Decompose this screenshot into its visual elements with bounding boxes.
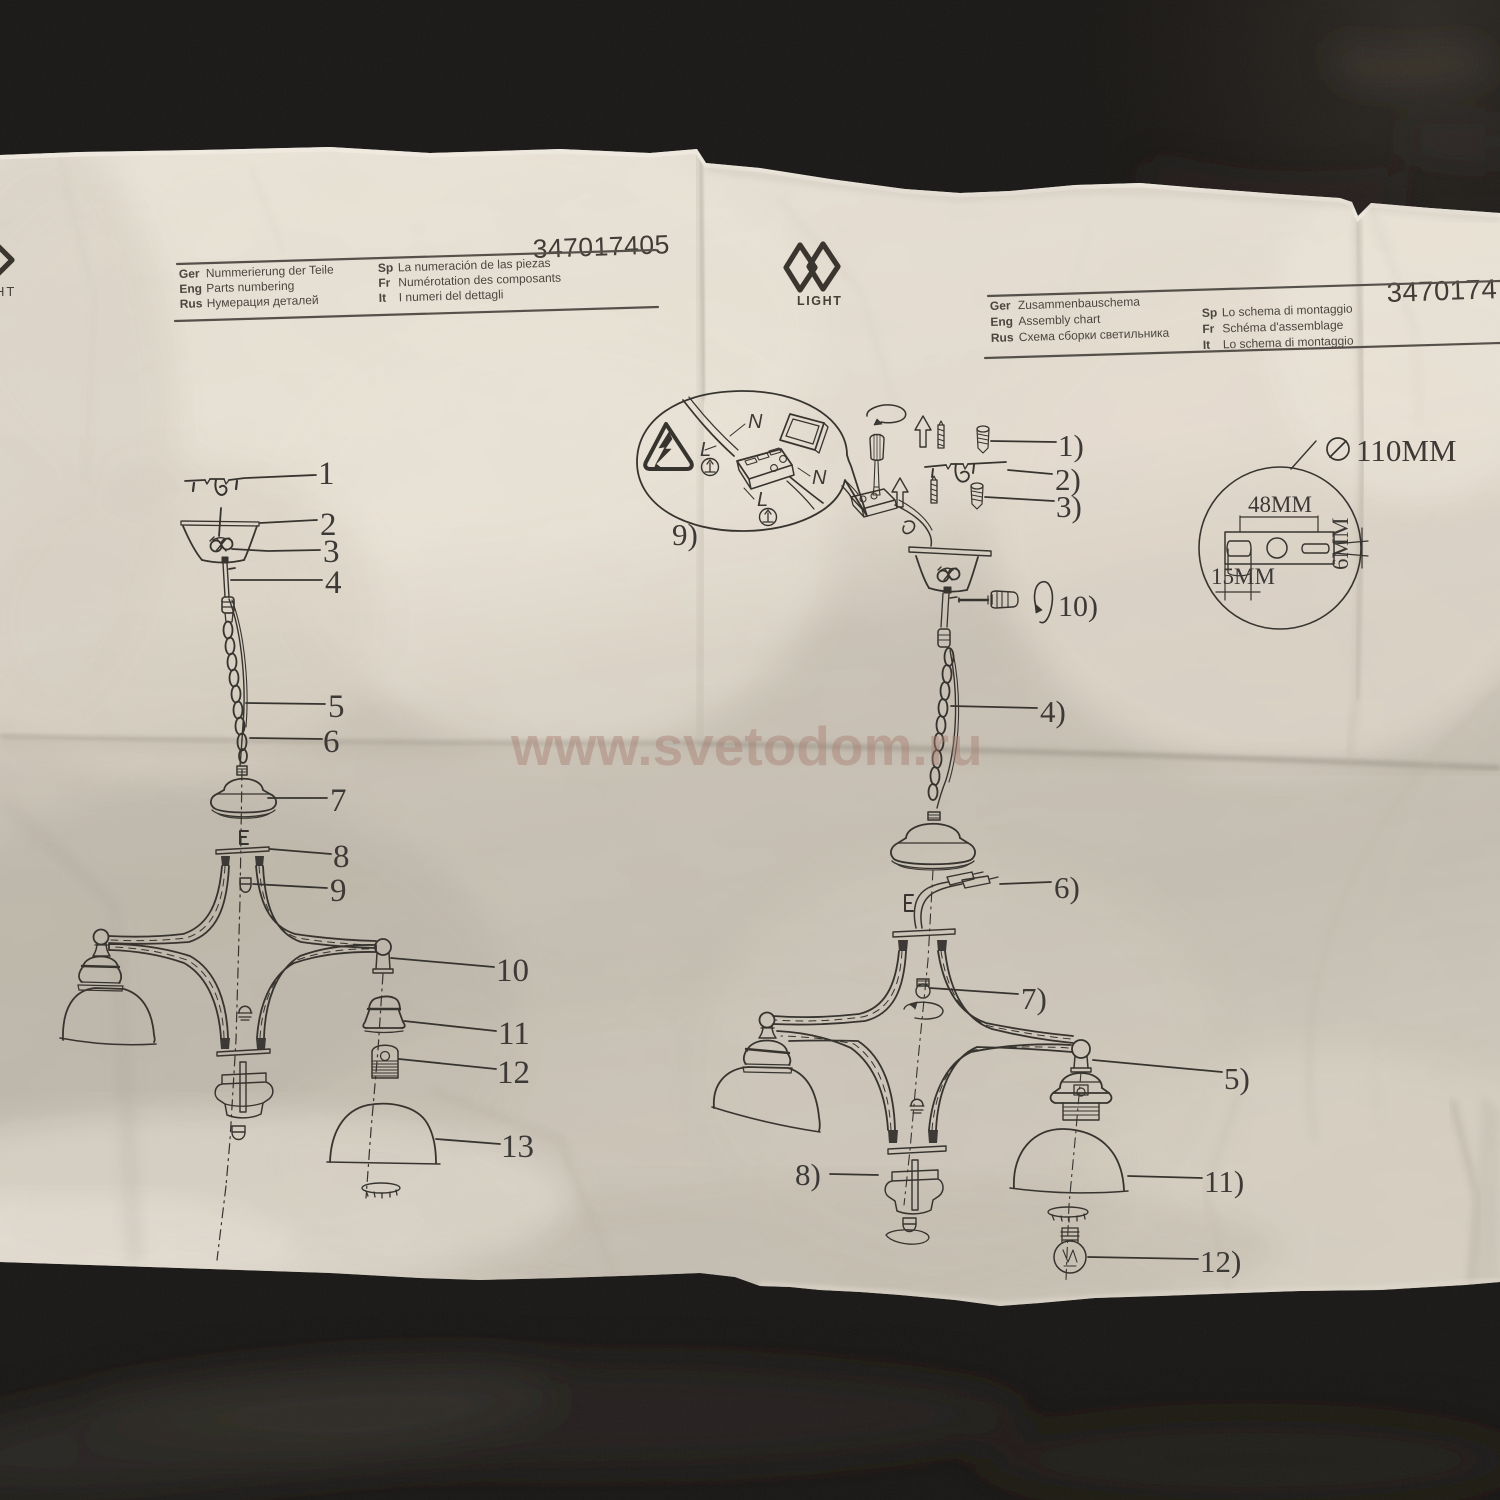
svg-text:5: 5 (328, 689, 345, 725)
svg-text:N: N (748, 411, 763, 433)
svg-text:Rus: Rus (180, 296, 203, 311)
svg-text:9): 9) (672, 517, 698, 552)
svg-text:It: It (1203, 338, 1211, 352)
svg-text:110MM: 110MM (1356, 433, 1456, 468)
svg-text:7: 7 (330, 783, 347, 819)
svg-text:48MM: 48MM (1248, 492, 1312, 517)
svg-text:L: L (757, 489, 768, 511)
svg-text:9: 9 (330, 873, 347, 909)
svg-text:1: 1 (318, 456, 335, 492)
svg-text:6): 6) (1054, 870, 1080, 905)
svg-text:5): 5) (1224, 1061, 1250, 1096)
svg-text:347017405: 347017405 (532, 229, 670, 264)
svg-text:11): 11) (1204, 1164, 1244, 1199)
svg-text:Parts numbering: Parts numbering (206, 279, 294, 296)
svg-text:15MM: 15MM (1211, 564, 1275, 589)
svg-text:7): 7) (1021, 981, 1047, 1016)
svg-text:Rus: Rus (991, 330, 1014, 345)
svg-text:N: N (812, 467, 827, 489)
svg-text:12: 12 (497, 1055, 530, 1091)
svg-text:6: 6 (323, 724, 340, 760)
svg-text:Eng: Eng (990, 314, 1013, 329)
svg-text:13: 13 (501, 1129, 534, 1165)
svg-text:Fr: Fr (378, 276, 391, 290)
svg-text:Eng: Eng (179, 281, 202, 296)
svg-text:11: 11 (498, 1016, 530, 1052)
svg-text:4): 4) (1040, 694, 1066, 729)
svg-text:4: 4 (325, 565, 342, 601)
svg-text:8): 8) (795, 1157, 821, 1192)
svg-text:12): 12) (1200, 1244, 1241, 1279)
svg-text:10): 10) (1058, 590, 1098, 623)
svg-text:It: It (379, 291, 387, 305)
svg-text:www.svetodom.ru: www.svetodom.ru (510, 715, 983, 777)
svg-text:LIGHT: LIGHT (797, 294, 843, 308)
svg-text:1): 1) (1058, 428, 1084, 463)
svg-text:10: 10 (496, 953, 529, 989)
svg-text:Ger: Ger (179, 266, 200, 281)
svg-text:Sp: Sp (378, 261, 394, 275)
svg-text:Fr: Fr (1202, 322, 1215, 336)
svg-text:3): 3) (1056, 489, 1082, 524)
svg-text:3470174: 3470174 (1386, 273, 1498, 308)
svg-text:Sp: Sp (1202, 306, 1218, 320)
svg-text:LIGHT: LIGHT (0, 284, 16, 299)
svg-text:Assembly chart: Assembly chart (1018, 312, 1101, 328)
svg-text:8: 8 (333, 839, 350, 875)
svg-text:Ger: Ger (990, 298, 1011, 313)
